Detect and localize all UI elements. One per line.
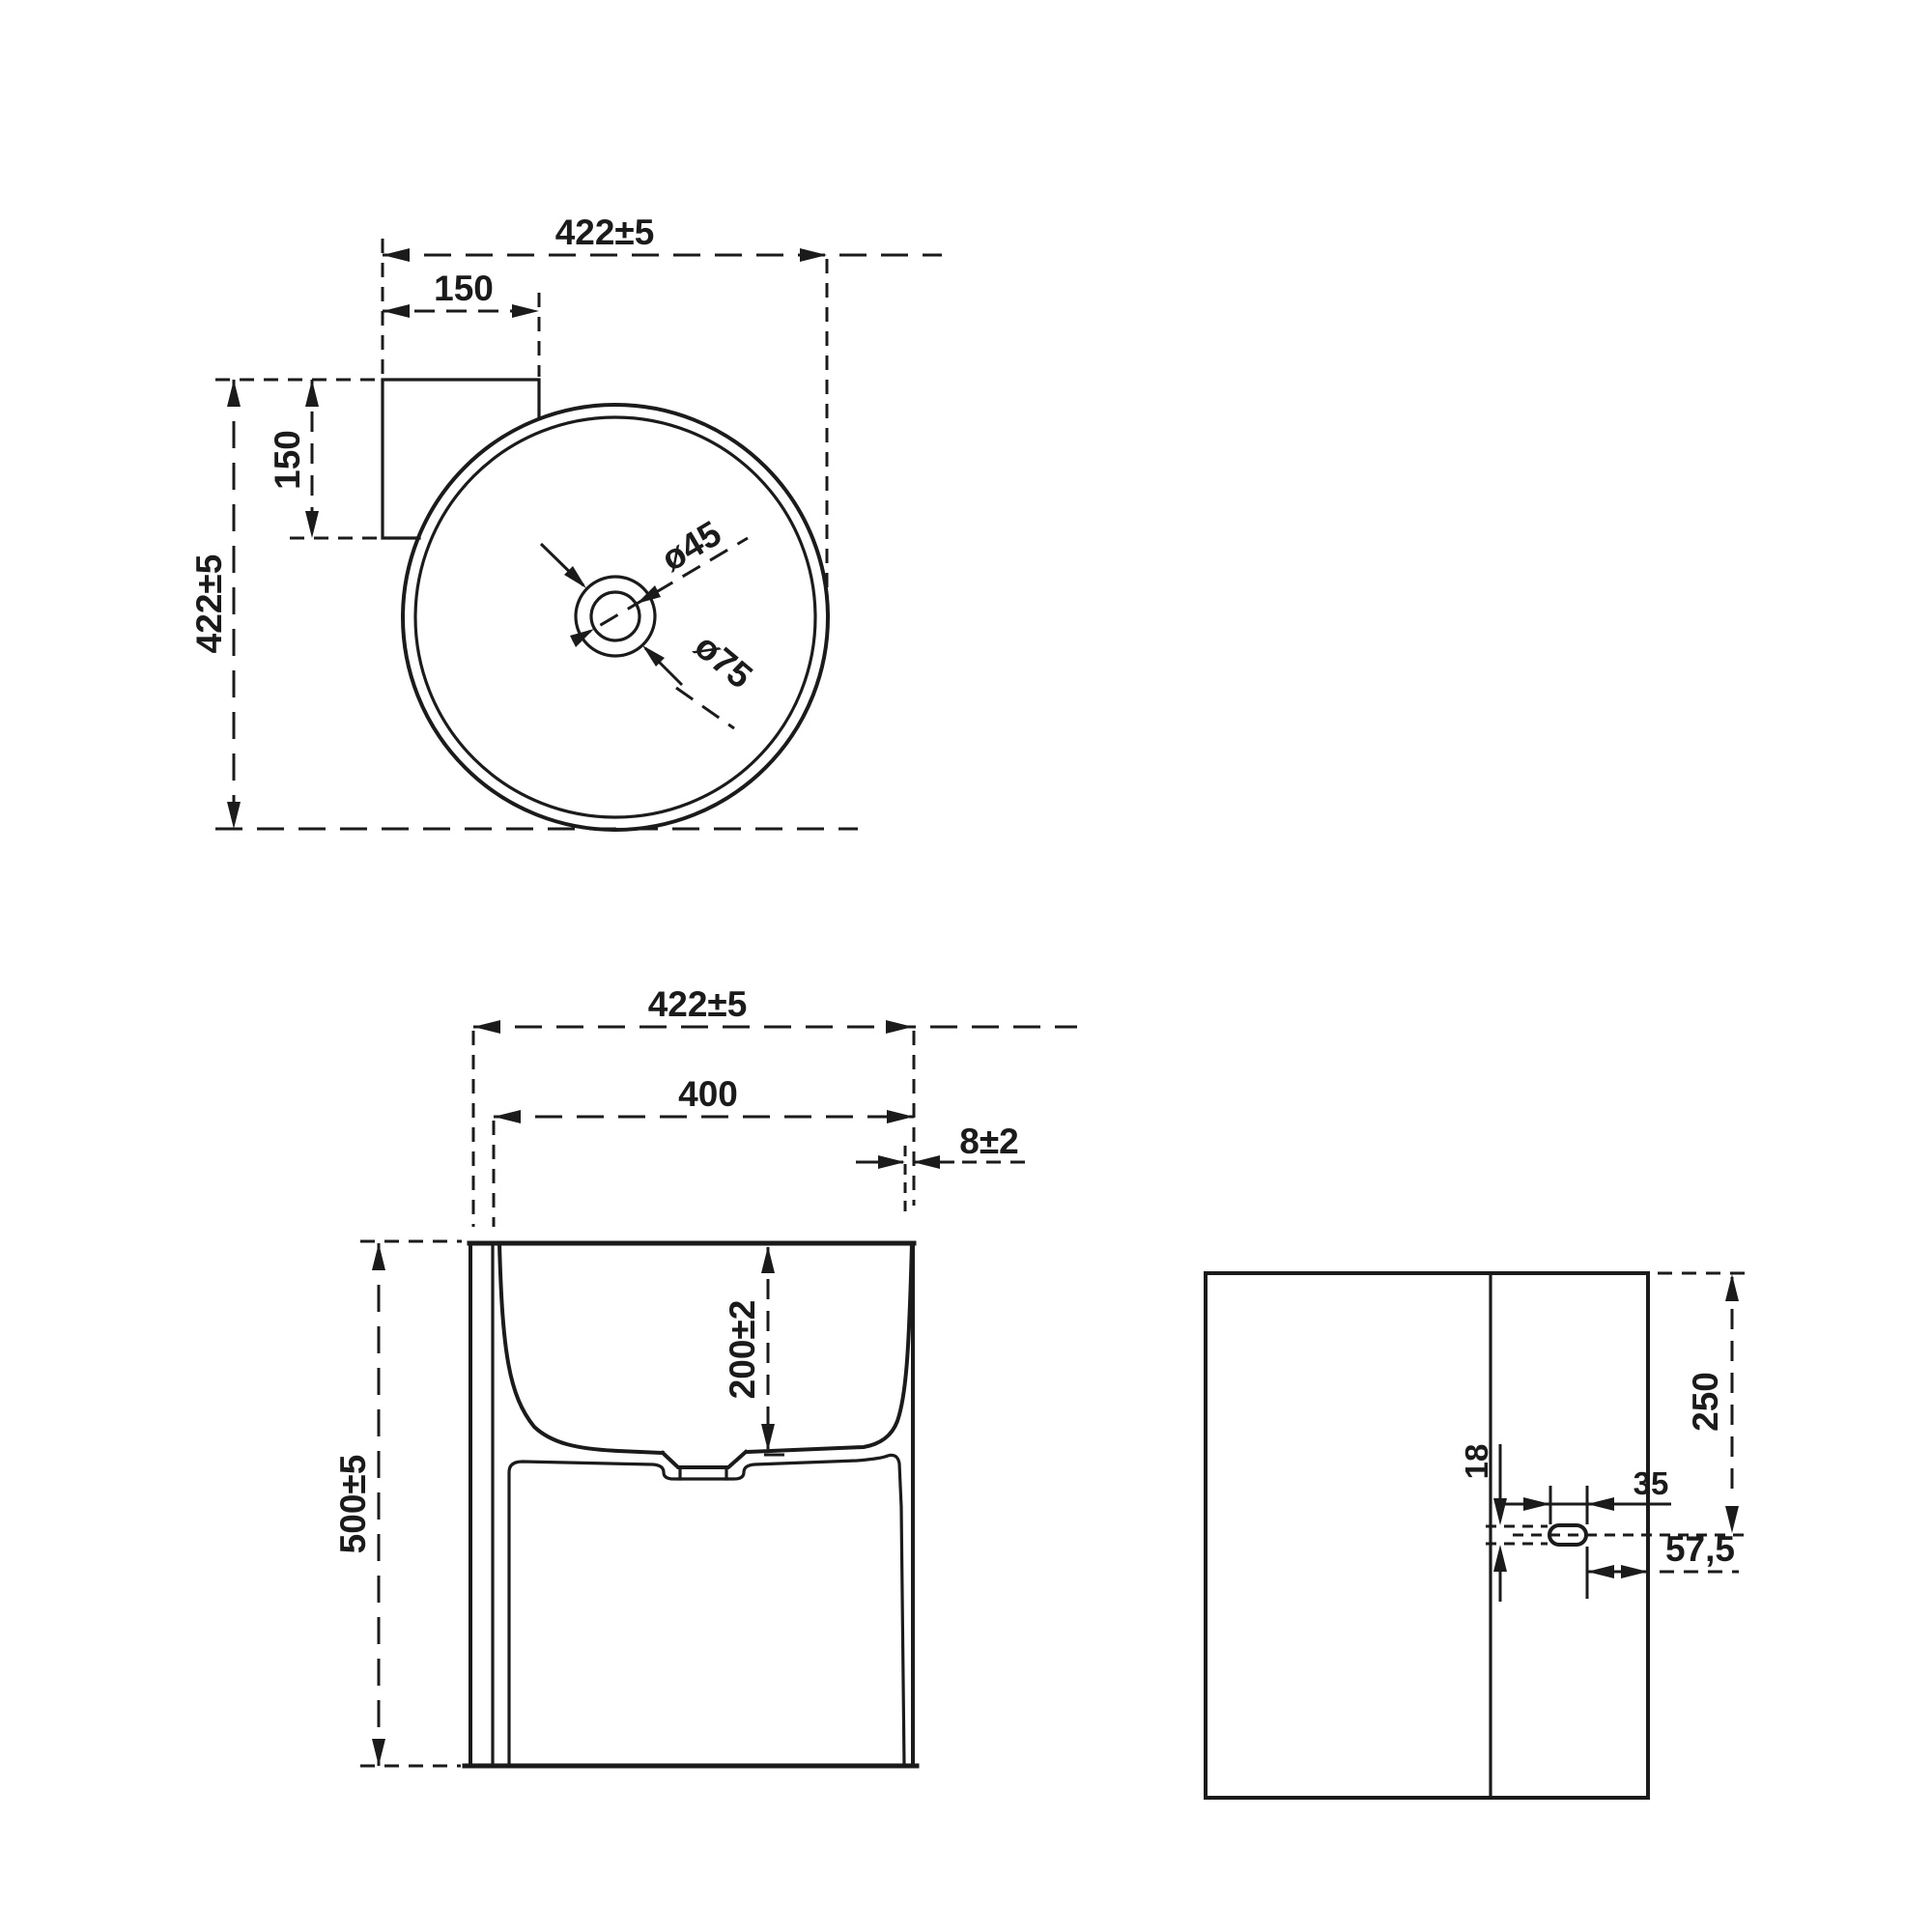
arrowhead: [878, 1155, 905, 1169]
label-underline: [676, 688, 734, 728]
side-view: 18 35 57,5 250: [1206, 1273, 1750, 1798]
dim-front-overall-height: 500±5: [333, 1241, 462, 1766]
dim-front-inner-width: 400: [494, 1031, 914, 1227]
dim-top-to-hole-label: 250: [1686, 1372, 1725, 1432]
dim-drain-recess-label: ø75: [687, 626, 759, 696]
arrowhead: [886, 1020, 913, 1034]
arrowhead: [383, 248, 410, 262]
arrowhead: [305, 380, 319, 407]
arrowhead: [1587, 1497, 1614, 1511]
dim-rim-wall-thickness-label: 8±2: [959, 1122, 1018, 1161]
technical-drawing-sheet: ø45 ø75 422±5 150: [0, 0, 1932, 1932]
arrowhead: [1621, 1565, 1648, 1578]
dim-front-overall-width: 422±5: [473, 984, 1077, 1227]
arrowhead: [372, 1243, 385, 1270]
dim-tab-width: 150: [383, 269, 539, 377]
dim-tab-width-label: 150: [434, 269, 494, 308]
arrowhead: [1587, 1565, 1614, 1578]
dim-front-inner-width-label: 400: [678, 1074, 738, 1114]
top-view: ø45 ø75 422±5 150: [189, 213, 942, 830]
dim-basin-depth: 200±2: [723, 1246, 784, 1455]
arrowhead: [473, 1020, 500, 1034]
arrowhead: [227, 802, 241, 829]
arrowhead: [887, 1110, 914, 1123]
bowl-left-profile: [499, 1243, 663, 1453]
arrowhead: [1725, 1274, 1739, 1301]
arrowhead: [1493, 1545, 1507, 1572]
dim-rim-wall-thickness: 8±2: [856, 1122, 1026, 1219]
dim-hole-height: 18: [1459, 1444, 1548, 1602]
bowl-right-profile: [747, 1243, 912, 1452]
dim-top-overall-width-label: 422±5: [555, 213, 655, 252]
arrowhead: [305, 511, 319, 538]
side-body-outline: [1206, 1273, 1648, 1798]
arrowhead: [800, 248, 827, 262]
dim-top-to-hole: 250: [1658, 1273, 1747, 1533]
dim-drain-hole-label: ø45: [655, 513, 728, 579]
arrowhead: [570, 629, 594, 647]
arrowhead: [1523, 1497, 1550, 1511]
dim-top-overall-depth-label: 422±5: [189, 554, 229, 654]
arrowhead: [913, 1155, 940, 1169]
arrowhead: [1493, 1498, 1507, 1525]
arrowhead: [383, 304, 410, 318]
arrowhead: [637, 585, 661, 604]
dim-tab-depth: 150: [268, 380, 381, 538]
arrowhead: [761, 1246, 775, 1273]
dim-front-overall-width-label: 422±5: [648, 984, 748, 1024]
arrowhead: [761, 1424, 775, 1451]
bowl-underside-profile: [509, 1455, 904, 1766]
front-view: 422±5 400 8±2 500±5: [333, 984, 1077, 1766]
dim-hole-width-label: 35: [1634, 1465, 1669, 1501]
top-view-tab-outline: [383, 380, 539, 538]
dim-basin-depth-label: 200±2: [723, 1300, 762, 1400]
arrowhead: [512, 304, 539, 318]
basin-dimension-drawing: ø45 ø75 422±5 150: [0, 0, 1932, 1932]
arrowhead: [494, 1110, 521, 1123]
dim-hole-height-label: 18: [1459, 1444, 1494, 1480]
drain-recess-profile: [663, 1452, 746, 1467]
dim-hole-to-edge: 57,5: [1587, 1529, 1739, 1599]
dim-hole-to-edge-label: 57,5: [1665, 1529, 1735, 1569]
dim-front-overall-height-label: 500±5: [333, 1455, 373, 1554]
arrowhead: [372, 1739, 385, 1766]
dim-tab-depth-label: 150: [268, 430, 307, 490]
arrowhead: [227, 380, 241, 407]
